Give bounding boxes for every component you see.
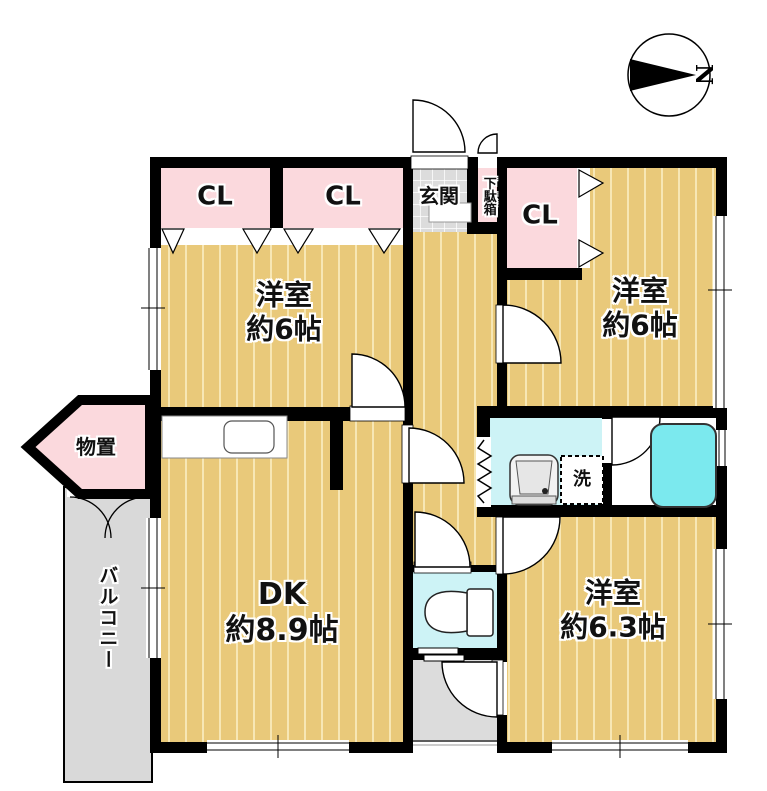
closet-nw-left-label: CL: [197, 181, 233, 212]
accordion-door: [476, 437, 491, 507]
bedroom-se-size: 約6.3帖: [560, 610, 666, 644]
entrance-opening: [411, 156, 468, 169]
bedroom-nw-size: 約6帖: [246, 312, 321, 346]
floorplan-canvas: [0, 0, 767, 791]
closet-nw-right-label: CL: [325, 181, 361, 212]
bedroom-ne-size: 約6帖: [602, 308, 677, 342]
toilet-sliding-door-b: [424, 655, 464, 661]
bedroom-ne-name: 洋室: [602, 274, 677, 308]
toilet: [425, 589, 493, 636]
bedroom-se-label: 洋室 約6.3帖: [560, 576, 666, 643]
bedroom-nw-doorway: [350, 406, 405, 421]
compass-north-label: N: [690, 64, 717, 85]
dk-size: 約8.9帖: [225, 613, 338, 649]
dk-label: DK 約8.9帖: [225, 577, 338, 649]
storage-label: 物置: [76, 435, 116, 459]
toilet-sliding-door-a: [418, 648, 458, 654]
window-ne-lower: [713, 364, 727, 408]
bedroom-nw-name: 洋室: [246, 278, 321, 312]
bedroom-nw-label: 洋室 約6帖: [246, 278, 321, 345]
floor-plan: CL CL 玄関 下駄箱 CL 洋室 約6帖 洋室 約6帖 DK 約8.9帖 洋…: [0, 0, 767, 791]
entrance-side-door: [478, 134, 497, 153]
closet-ne-label: CL: [522, 200, 558, 231]
bedroom-se-name: 洋室: [560, 576, 666, 610]
dk-name: DK: [225, 577, 338, 613]
entrance-label: 玄関: [419, 184, 459, 208]
entrance-door: [413, 100, 465, 152]
laundry-label: 洗: [573, 469, 591, 491]
washbasin: [510, 455, 558, 505]
kitchen-sink: [224, 421, 274, 453]
balcony-label: バルコニー: [96, 566, 119, 671]
bathtub: [651, 424, 716, 507]
bedroom-ne-label: 洋室 約6帖: [602, 274, 677, 341]
window-bathroom: [716, 430, 727, 466]
shoe-cabinet-label: 下駄箱: [480, 177, 496, 216]
